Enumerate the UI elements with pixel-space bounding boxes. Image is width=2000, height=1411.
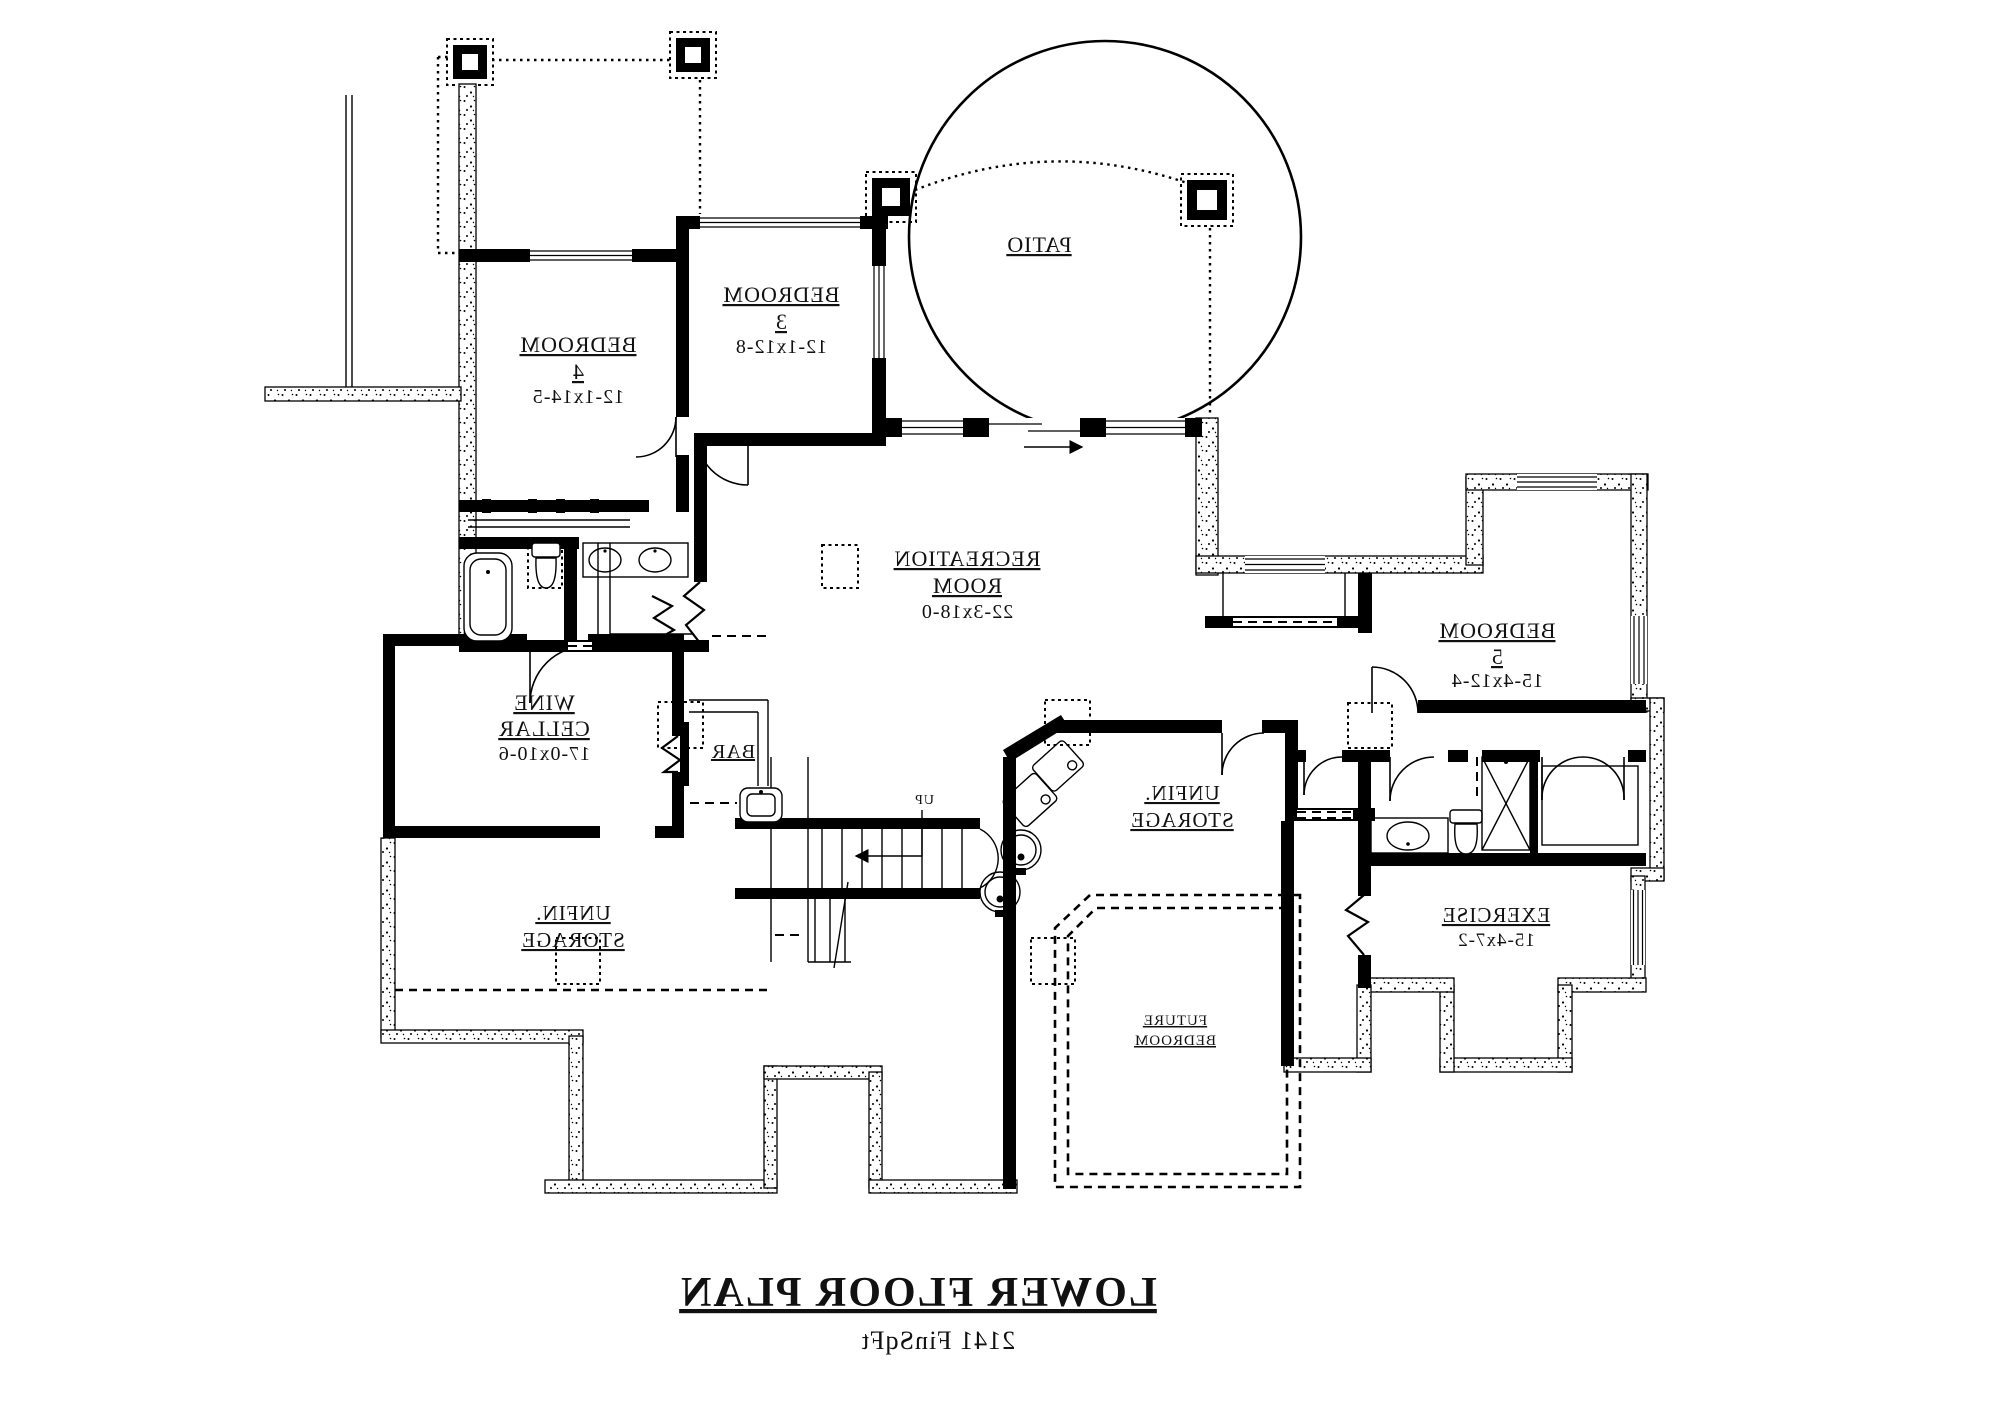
wine-cellar-label: WINECELLAR17-0x10-6 <box>498 690 590 765</box>
svg-text:5: 5 <box>1491 644 1503 669</box>
door-arc <box>636 417 676 457</box>
window <box>1631 890 1645 965</box>
plan-title: LOWER FLOOR PLAN <box>679 1270 1157 1316</box>
post-icon <box>670 32 716 78</box>
door-arc <box>1372 667 1418 713</box>
window <box>1245 556 1325 573</box>
svg-text:12-1x14-5: 12-1x14-5 <box>532 386 624 408</box>
up-arrow <box>856 810 922 856</box>
window <box>1631 616 1647 684</box>
patio-circle <box>909 41 1301 433</box>
door-arc <box>1222 733 1264 775</box>
svg-text:STORAGE: STORAGE <box>521 928 624 952</box>
svg-text:CELLAR: CELLAR <box>498 716 590 741</box>
up-label: UP <box>914 793 934 808</box>
post-box <box>822 545 858 588</box>
post-icon <box>866 172 916 222</box>
svg-text:BEDROOM: BEDROOM <box>722 282 839 307</box>
svg-text:UNFIN.: UNFIN. <box>1144 781 1219 805</box>
windows <box>530 216 1647 965</box>
recreation-room-label: RECREATIONROOM22-3x18-0 <box>894 546 1041 623</box>
svg-text:UNFIN.: UNFIN. <box>535 901 610 925</box>
svg-text:PATIO: PATIO <box>1006 232 1071 257</box>
bedroom-4-label: BEDROOM412-1x14-5 <box>519 332 636 408</box>
patio-label: PATIO <box>1006 232 1071 257</box>
toilet-icon <box>532 543 560 588</box>
toilet-icon <box>1450 810 1482 854</box>
svg-text:STORAGE: STORAGE <box>1130 808 1233 832</box>
svg-text:WINE: WINE <box>513 690 574 715</box>
window <box>530 249 632 262</box>
svg-text:15-4x12-4: 15-4x12-4 <box>1451 670 1543 692</box>
bedroom-3-label: BEDROOM312-1x12-8 <box>722 282 839 358</box>
svg-text:17-0x10-6: 17-0x10-6 <box>498 743 590 765</box>
svg-text:FUTURE: FUTURE <box>1143 1013 1207 1029</box>
svg-text:22-3x18-0: 22-3x18-0 <box>921 601 1013 623</box>
unfin-storage-left-label: UNFIN.STORAGE <box>521 901 624 952</box>
vanity-double-sink <box>583 543 688 577</box>
svg-text:12-1x12-8: 12-1x12-8 <box>735 336 827 358</box>
door-arc <box>1542 757 1583 800</box>
furnace-unit <box>1031 739 1085 792</box>
opening-zigzag <box>1346 895 1368 955</box>
door-arc <box>1304 757 1342 795</box>
post-icon <box>447 39 493 85</box>
svg-text:RECREATION: RECREATION <box>894 546 1041 571</box>
post-icon <box>1181 174 1233 226</box>
floor-plan-page: PATIOBEDROOM312-1x12-8BEDROOM412-1x14-5R… <box>0 0 2000 1411</box>
future-bedroom-label: FUTUREBEDROOM <box>1134 1013 1216 1049</box>
svg-text:4: 4 <box>572 359 584 384</box>
bar-label: BAR <box>711 741 755 763</box>
bathtub-icon <box>464 553 512 641</box>
svg-text:LOWER FLOOR PLAN: LOWER FLOOR PLAN <box>679 1270 1157 1316</box>
svg-text:EXERCISE: EXERCISE <box>1442 903 1550 927</box>
svg-text:BEDROOM: BEDROOM <box>1134 1033 1216 1049</box>
back-bar-counter <box>598 543 694 646</box>
opening-zigzag <box>662 736 680 772</box>
post-box <box>1348 703 1392 748</box>
bedroom-5-label: BEDROOM515-4x12-4 <box>1438 618 1555 692</box>
svg-text:BEDROOM: BEDROOM <box>519 332 636 357</box>
window <box>1517 474 1597 490</box>
window-well <box>1205 573 1367 628</box>
door-arc <box>1390 757 1434 801</box>
window <box>1106 418 1185 437</box>
window <box>700 216 860 229</box>
unfin-storage-center-label: UNFIN.STORAGE <box>1130 781 1233 832</box>
window <box>872 266 886 358</box>
svg-text:2141 FinSqFt: 2141 FinSqFt <box>861 1326 1015 1355</box>
exercise-label: EXERCISE15-4x7-2 <box>1442 903 1550 951</box>
window <box>902 418 963 437</box>
door-arc <box>1583 757 1624 800</box>
svg-text:BAR: BAR <box>711 741 755 763</box>
plan-area: 2141 FinSqFt <box>861 1326 1015 1355</box>
svg-text:15-4x7-2: 15-4x7-2 <box>1457 930 1535 951</box>
svg-text:ROOM: ROOM <box>932 573 1002 598</box>
vanity-sink <box>1371 818 1448 853</box>
floor-plan-canvas: PATIOBEDROOM312-1x12-8BEDROOM412-1x14-5R… <box>0 0 2000 1411</box>
svg-text:BEDROOM: BEDROOM <box>1438 618 1555 643</box>
deck-posts <box>447 32 1233 226</box>
sliding-door <box>989 418 1080 437</box>
svg-text:3: 3 <box>775 309 787 334</box>
shower-icon <box>1482 757 1530 850</box>
stairs <box>771 757 998 968</box>
svg-text:UP: UP <box>914 793 934 808</box>
